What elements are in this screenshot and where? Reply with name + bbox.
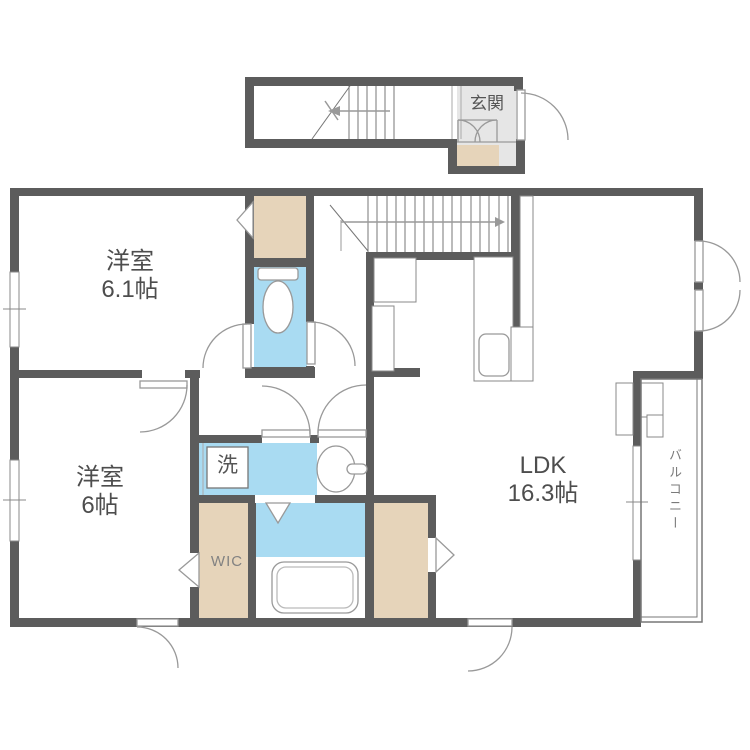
kitchen-sink-icon [479,334,509,376]
counter-return [511,327,533,381]
wall [10,618,641,627]
bedroom1-label: 洋室 6.1帖 [55,248,205,304]
washroom-door-leaf [318,430,366,437]
floor-plan-drawing [0,0,750,750]
genkan-label: 玄関 [457,95,517,113]
hall-door-arc [262,386,310,434]
wall [245,77,523,86]
bedroom2-terrace-door-arc [137,627,178,668]
stairs-first-floor [312,86,461,139]
bedroom2-terrace-door-leaf [137,619,178,626]
ldk-door-leaf [695,290,703,331]
genkan-step [457,145,499,166]
wall [190,587,199,618]
wall [514,77,523,91]
bedroom2-name: 洋室 [25,464,175,492]
wall [516,139,525,174]
ldk-terrace-door-arc [468,627,512,671]
wic-fold-door [179,553,199,587]
ldk-terrace-door-leaf [468,619,512,626]
toilet-tank-icon [258,268,298,280]
ldk-door-arc [699,290,740,331]
bedroom1-size: 6.1帖 [55,276,205,304]
toilet-door-arc [311,322,355,366]
wall [254,258,314,267]
front-door-leaf [517,90,525,140]
closet-floor [254,196,306,258]
ldk-closet-floor [373,503,428,618]
balcony-label: バルコニー [664,448,684,588]
kitchen-duct [520,196,533,327]
wall [245,367,315,378]
wall [306,196,314,322]
wall [245,77,254,148]
balcony-sliding-window [633,446,641,560]
ldk-cabinet [616,383,633,435]
ldk-label: LDK 16.3帖 [465,452,621,508]
wall [694,282,703,290]
wall [448,166,516,174]
wall [10,188,19,627]
bedroom1-door-leaf [243,324,251,368]
refrigerator-space [374,258,416,302]
stair-break-line [330,205,368,251]
bedroom2-label: 洋室 6帖 [25,464,175,520]
wall [633,371,703,379]
wall [245,139,457,148]
wall [190,495,255,503]
floor-plan: 玄関 洋室 6.1帖 洋室 6帖 LDK 16.3帖 洗 WIC バルコニー [0,0,750,750]
bedroom1-door-arc [203,324,247,368]
bedroom1-name: 洋室 [55,248,205,276]
wall [365,503,373,618]
wall [10,370,142,378]
water-heater-pipe-box [647,415,663,437]
bathtub-inner-line [277,567,353,608]
faucet-icon [347,464,367,474]
wall [190,370,199,553]
stair-break-line [312,86,350,139]
front-door-arc [521,93,568,140]
stair-arrow-head [495,217,505,227]
wall [190,435,262,443]
wall [428,572,436,618]
washroom-door-arc [318,385,366,433]
wic-label: WIC [197,553,257,570]
water-heater-unit [641,383,663,417]
wall [315,495,436,503]
bedroom2-size: 6帖 [25,492,175,520]
bedroom2-door-arc [140,385,187,432]
wall [694,188,703,241]
ldk-door-arc [699,241,740,282]
wall [10,188,703,196]
stairs-second-floor [330,196,508,252]
bedroom2-door-leaf [140,381,187,388]
toilet-door-leaf [307,322,315,364]
wall [428,503,436,538]
ldk-closet-fold-door [436,538,454,572]
kitchen-counter-side [372,306,394,371]
toilet-bowl-icon [263,281,293,333]
laundry-label: 洗 [207,450,248,481]
ldk-name: LDK [465,452,621,480]
ldk-door-leaf [695,241,703,282]
hall-door-leaf [262,430,310,437]
ldk-size: 16.3帖 [465,480,621,508]
